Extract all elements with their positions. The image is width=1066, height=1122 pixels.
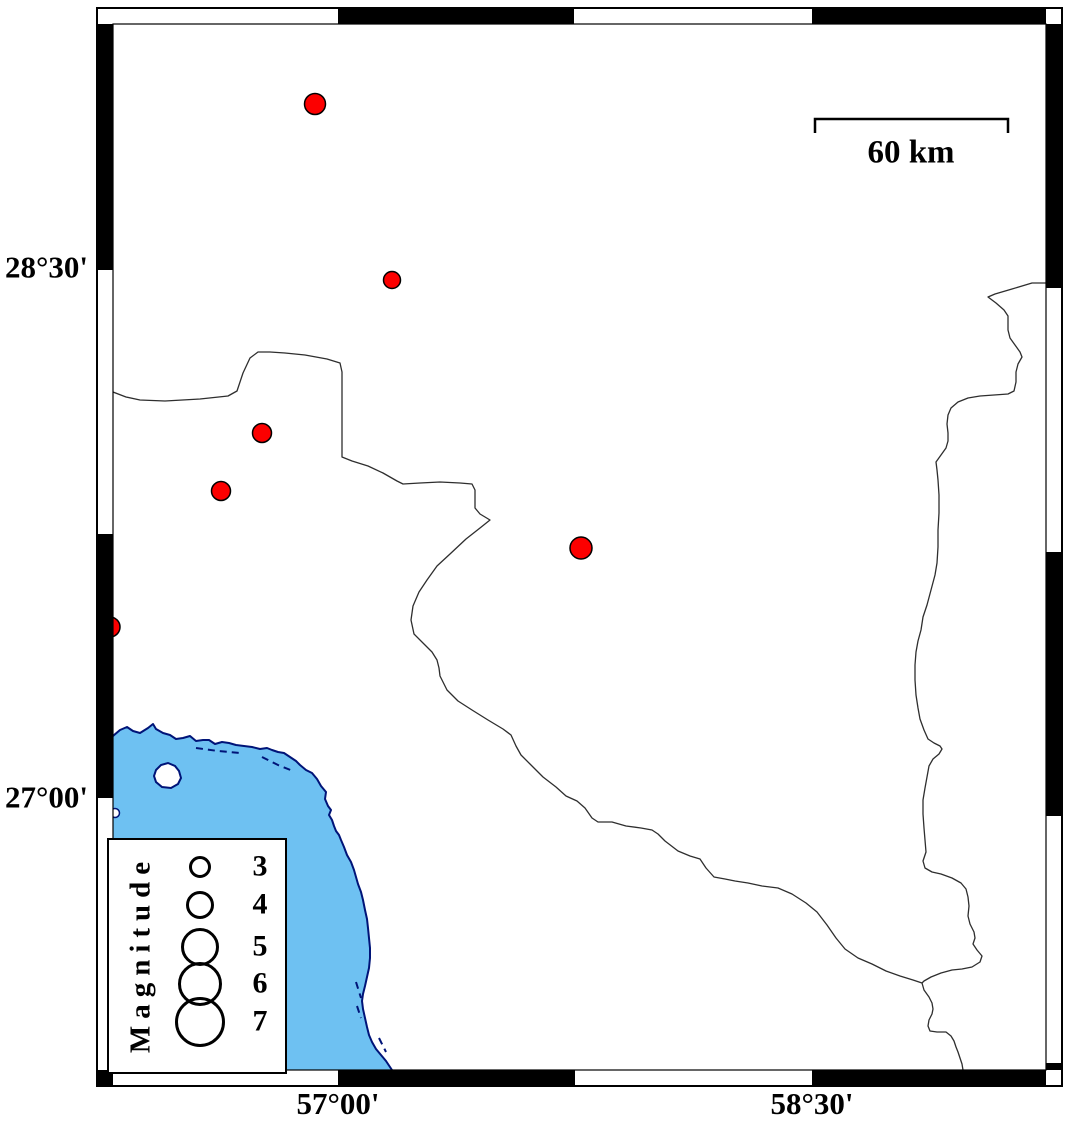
- legend-magnitude-label: 6: [253, 966, 268, 1000]
- axis-label-lon-57-00: 57°00': [296, 1086, 379, 1122]
- frame-segment: [97, 534, 113, 798]
- epicenter-marker: [384, 272, 401, 289]
- legend-magnitude-circle: [181, 928, 219, 966]
- epicenter-marker: [305, 94, 326, 115]
- frame-segment: [1046, 552, 1062, 816]
- legend-magnitude-circle: [186, 891, 214, 919]
- frame-segment: [1046, 1063, 1062, 1070]
- frame-segment: [1046, 816, 1062, 1063]
- frame-segment: [97, 270, 113, 534]
- axis-label-lon-58-30: 58°30': [770, 1086, 853, 1122]
- frame-segment: [338, 1070, 575, 1086]
- frame-segment: [812, 8, 1046, 24]
- frame-segment: [575, 1070, 812, 1086]
- frame-corner: [1046, 1070, 1062, 1086]
- frame-corner: [1046, 8, 1062, 24]
- frame-segment: [1046, 24, 1062, 288]
- legend-magnitude-label: 3: [253, 849, 268, 883]
- admin-border-line: [922, 983, 963, 1070]
- axis-label-lat-28-30: 28°30': [5, 249, 88, 285]
- frame-segment: [113, 8, 338, 24]
- legend-magnitude-label: 5: [253, 929, 268, 963]
- frame-segment: [97, 24, 113, 270]
- legend-magnitude-label: 7: [253, 1004, 268, 1038]
- scale-bar-label: 60 km: [867, 135, 954, 172]
- shoal-dash: [379, 1038, 386, 1052]
- frame-segment: [338, 8, 574, 24]
- legend-magnitude-circle: [175, 997, 225, 1047]
- frame-segment: [812, 1070, 1046, 1086]
- scale-bar-bracket: [815, 119, 1008, 133]
- frame-segment: [574, 8, 812, 24]
- admin-border-line: [915, 283, 1046, 983]
- seismicity-map-figure: 28°30' 27°00' 57°00' 58°30' 60 km Magnit…: [0, 0, 1066, 1122]
- legend-magnitude-label: 4: [253, 887, 268, 921]
- frame-corner: [97, 8, 113, 24]
- epicenter-marker: [570, 537, 592, 559]
- frame-segment: [1046, 288, 1062, 552]
- legend-title: Magnitude: [125, 855, 158, 1053]
- legend-magnitude-circle: [189, 856, 211, 878]
- epicenter-marker: [253, 424, 272, 443]
- axis-label-lat-27-00: 27°00': [5, 779, 88, 815]
- magnitude-legend: Magnitude 34567: [107, 838, 287, 1074]
- epicenter-marker: [212, 482, 231, 501]
